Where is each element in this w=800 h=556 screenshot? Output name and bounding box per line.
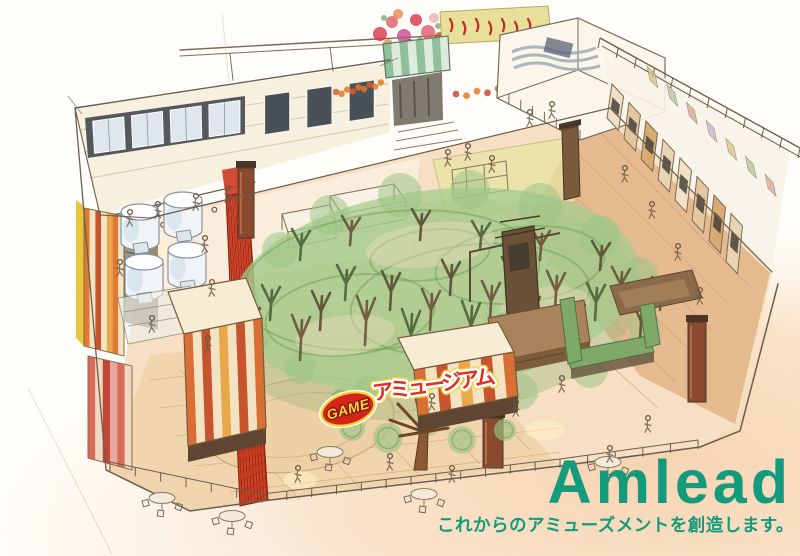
entrance-awning bbox=[383, 36, 450, 78]
entrance bbox=[383, 36, 462, 150]
yellow-strip bbox=[76, 200, 84, 346]
amlead-wordmark: Amlead bbox=[548, 448, 792, 516]
amlead-tagline: これからのアミューズメントを創造します。 bbox=[437, 515, 794, 535]
concept-sketch: アミュージアム アミュージアム GAME Amlead これからのアミューズメン… bbox=[0, 0, 800, 556]
concept-sketch-page: アミュージアム アミュージアム GAME Amlead これからのアミューズメン… bbox=[0, 0, 800, 556]
support-pillar bbox=[562, 126, 580, 200]
